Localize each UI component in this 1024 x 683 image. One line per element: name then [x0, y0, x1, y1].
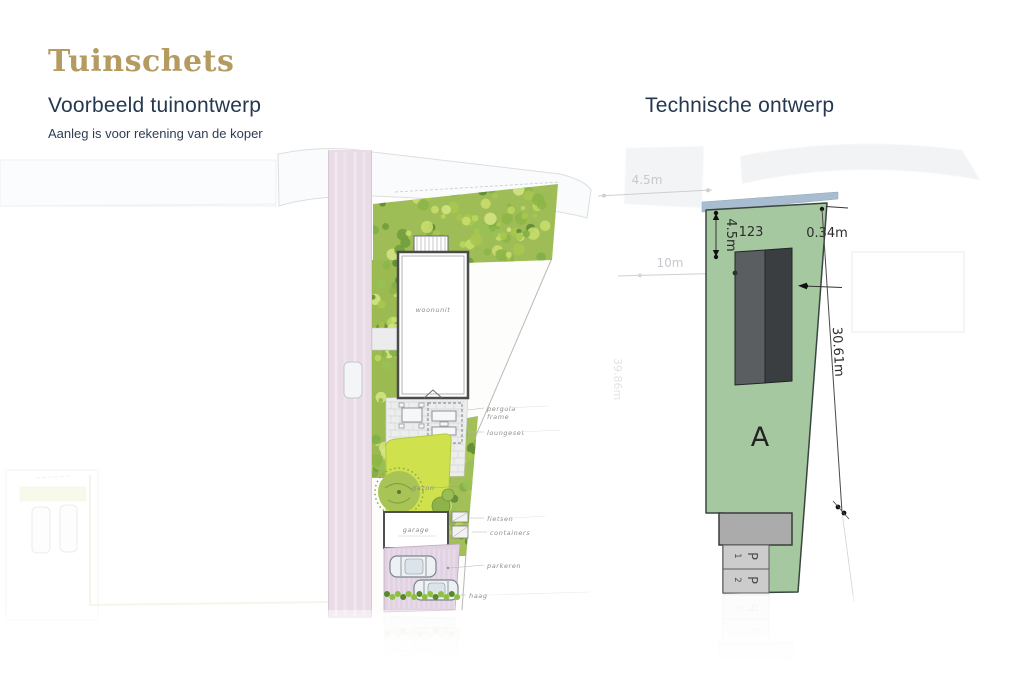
faded-street-left [0, 160, 276, 206]
garden-sketch-svg: gazon woonunit garage [0, 140, 600, 683]
plot-number: 123 [739, 225, 764, 240]
house: woonunit [398, 236, 468, 398]
faded-depth-dim: 10m [657, 256, 684, 270]
building-footprint [735, 248, 792, 385]
parking-1-letter: P [744, 552, 759, 560]
pergola-label-1: pergola [486, 405, 516, 413]
garage: garage [384, 512, 448, 548]
parking-2-letter: P [744, 576, 759, 584]
parking-1-number: 1 [732, 553, 742, 558]
side-offset-label: 0.34m [806, 226, 848, 241]
parking-cell-1: P 1 [723, 545, 769, 569]
hedge-label: haag [469, 592, 488, 600]
house-label: woonunit [416, 306, 451, 314]
length-dim-label: 30.61m [829, 327, 847, 378]
driveway-label: parkeren [486, 562, 521, 570]
left-panel-heading: Voorbeeld tuinontwerp [48, 94, 261, 118]
faded-side-length-dim: 39.86m [611, 358, 624, 400]
parking-cell-2: P 2 [723, 569, 769, 593]
parked-car-road [344, 362, 362, 398]
garage-block [719, 513, 792, 545]
faded-road-width-dim: 4.5m [632, 173, 663, 187]
garden-gate-path [372, 328, 398, 350]
garage-label: garage [403, 526, 430, 534]
zone-label: A [751, 422, 770, 453]
parking-2-number: 2 [732, 577, 742, 582]
right-panel-heading: Technische ontwerp [645, 94, 834, 118]
faded-neighbour-plot [6, 470, 330, 620]
bikes-label: fietsen [487, 515, 513, 523]
garden-sketch-panel: gazon woonunit garage [0, 140, 600, 683]
technical-plan-panel: 4.5m 10m 39.86m 123 A 4.5m 0.34m [590, 140, 1024, 683]
technical-plan-svg: 4.5m 10m 39.86m 123 A 4.5m 0.34m [590, 140, 1024, 683]
depth-dim-endpoint [733, 271, 738, 276]
driveway [384, 544, 460, 612]
plan-reflection-fade [590, 595, 1024, 683]
pergola-label-2: frame [487, 413, 509, 421]
page-title: Tuinschets [48, 44, 234, 79]
house-entrance [414, 236, 448, 253]
left-panel-subheading: Aanleg is voor rekening van de koper [48, 126, 263, 141]
road-strip [328, 150, 372, 618]
car-1 [390, 556, 436, 577]
lounge-label: loungeset [487, 429, 524, 437]
shrub-small [442, 489, 454, 501]
sketch-reflection-fade [0, 610, 600, 683]
containers-label: containers [490, 529, 530, 537]
setback-dim-label: 4.5m [723, 218, 738, 251]
